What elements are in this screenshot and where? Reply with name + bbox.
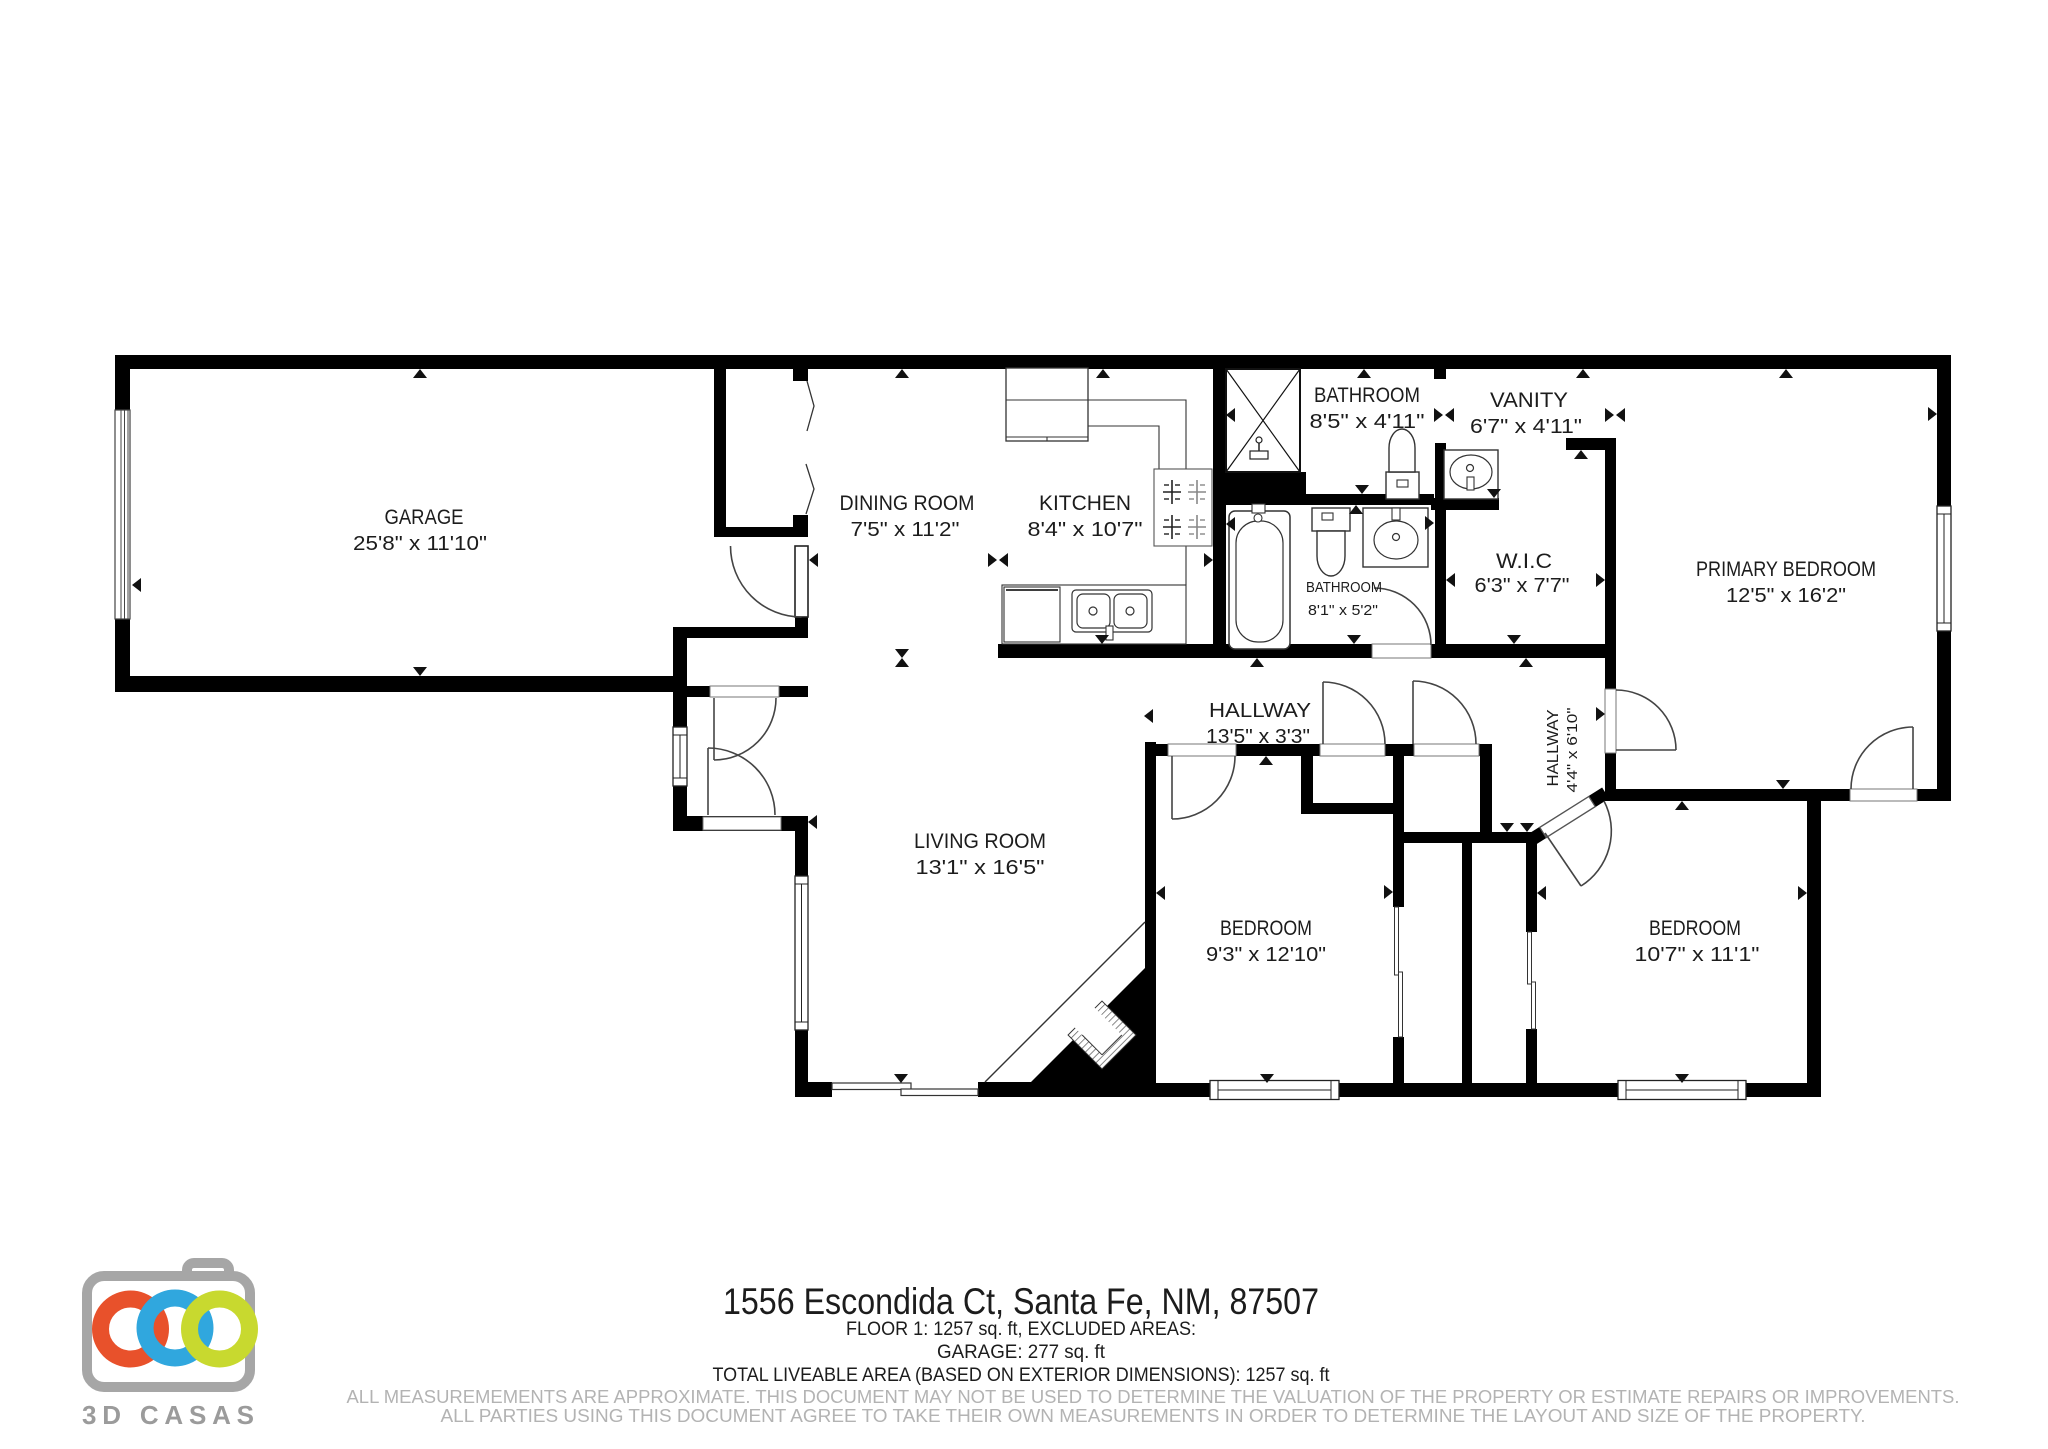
svg-text:1556 Escondida Ct, Santa Fe, N: 1556 Escondida Ct, Santa Fe, NM, 87507 bbox=[723, 1281, 1319, 1322]
svg-text:DINING ROOM: DINING ROOM bbox=[840, 492, 975, 515]
svg-text:8'4" x 10'7": 8'4" x 10'7" bbox=[1028, 519, 1143, 541]
svg-text:10'7" x 11'1": 10'7" x 11'1" bbox=[1635, 944, 1760, 966]
svg-text:FLOOR 1: 1257 sq. ft, EXCLUDED: FLOOR 1: 1257 sq. ft, EXCLUDED AREAS: bbox=[846, 1319, 1196, 1340]
svg-text:PRIMARY BEDROOM: PRIMARY BEDROOM bbox=[1696, 558, 1876, 581]
svg-text:GARAGE: GARAGE bbox=[385, 506, 464, 529]
svg-text:TOTAL LIVEABLE AREA (BASED ON: TOTAL LIVEABLE AREA (BASED ON EXTERIOR D… bbox=[713, 1365, 1331, 1386]
svg-text:BEDROOM: BEDROOM bbox=[1649, 917, 1741, 940]
svg-text:VANITY: VANITY bbox=[1490, 389, 1568, 412]
svg-text:KITCHEN: KITCHEN bbox=[1039, 492, 1131, 515]
svg-text:8'1" x 5'2": 8'1" x 5'2" bbox=[1308, 602, 1378, 619]
svg-text:6'7" x 4'11": 6'7" x 4'11" bbox=[1470, 416, 1582, 438]
svg-text:HALLWAY: HALLWAY bbox=[1545, 709, 1562, 786]
svg-text:BEDROOM: BEDROOM bbox=[1220, 917, 1312, 940]
svg-text:BATHROOM: BATHROOM bbox=[1314, 384, 1420, 407]
svg-text:7'5" x 11'2": 7'5" x 11'2" bbox=[851, 519, 960, 541]
svg-text:W.I.C: W.I.C bbox=[1496, 550, 1552, 573]
svg-text:LIVING ROOM: LIVING ROOM bbox=[914, 830, 1046, 853]
svg-text:13'5" x 3'3": 13'5" x 3'3" bbox=[1206, 726, 1310, 748]
svg-text:13'1" x 16'5": 13'1" x 16'5" bbox=[916, 857, 1045, 879]
svg-text:ALL PARTIES USING THIS DOCUMEN: ALL PARTIES USING THIS DOCUMENT AGREE TO… bbox=[441, 1406, 1866, 1426]
svg-text:25'8" x 11'10": 25'8" x 11'10" bbox=[353, 533, 487, 555]
svg-text:8'5" x 4'11": 8'5" x 4'11" bbox=[1310, 411, 1425, 433]
svg-text:GARAGE: 277 sq. ft: GARAGE: 277 sq. ft bbox=[937, 1342, 1106, 1363]
svg-text:HALLWAY: HALLWAY bbox=[1209, 700, 1311, 722]
svg-text:4'4" x 6'10": 4'4" x 6'10" bbox=[1564, 708, 1581, 793]
svg-text:ALL MEASUREMEMENTS ARE APPROXI: ALL MEASUREMEMENTS ARE APPROXIMATE. THIS… bbox=[347, 1387, 1960, 1407]
svg-text:BATHROOM: BATHROOM bbox=[1306, 579, 1382, 596]
svg-text:6'3" x 7'7": 6'3" x 7'7" bbox=[1475, 575, 1570, 597]
svg-text:9'3" x 12'10": 9'3" x 12'10" bbox=[1206, 944, 1326, 966]
svg-text:3D CASAS: 3D CASAS bbox=[82, 1400, 254, 1430]
svg-text:12'5" x 16'2": 12'5" x 16'2" bbox=[1726, 585, 1846, 607]
